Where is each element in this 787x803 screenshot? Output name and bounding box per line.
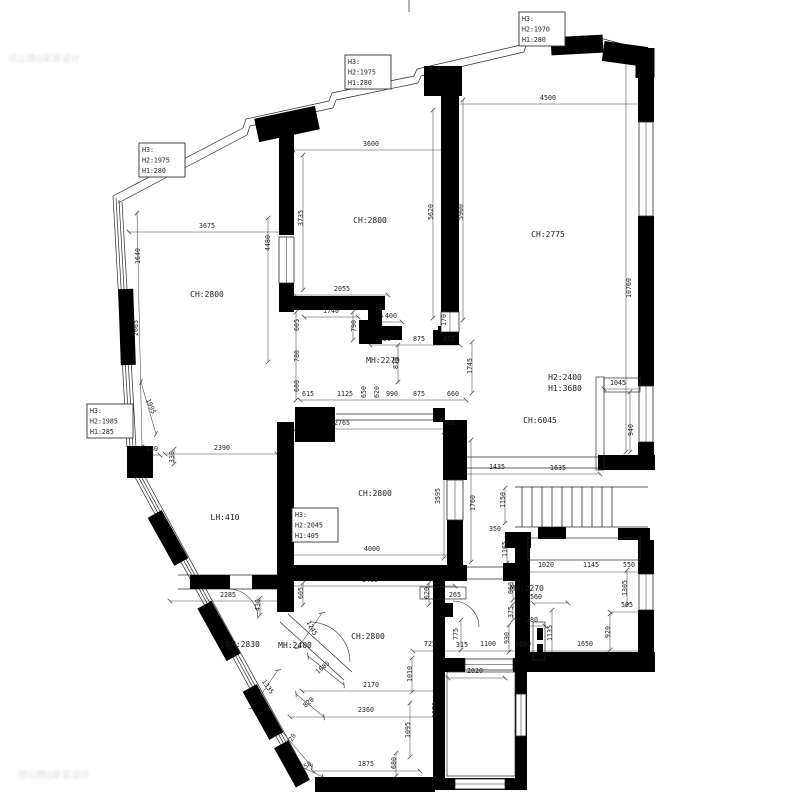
dimension-text: 2055 — [334, 285, 350, 293]
dimension-text: 1650 — [577, 640, 593, 648]
room-label: CH:2800 — [190, 290, 224, 299]
fixture-outline — [528, 538, 640, 560]
height-info-text: H3: — [348, 58, 360, 66]
dimension-text: 2170 — [363, 681, 379, 689]
wall-line — [247, 126, 250, 135]
height-info-text: H2:2045 — [295, 522, 323, 530]
fixture-outline — [447, 672, 515, 776]
dimension-text: 2390 — [214, 444, 230, 452]
dimension-text: 1875 — [358, 760, 374, 768]
wall — [433, 658, 445, 790]
wall-line — [139, 466, 238, 648]
room-label: CH:2800 — [358, 489, 392, 498]
wall — [638, 540, 654, 574]
dimension-text: 400 — [385, 312, 397, 320]
dimension-text: 1100 — [480, 640, 496, 648]
dimension-text: 1045 — [610, 379, 626, 387]
dimension-text: 940 — [627, 424, 635, 436]
wall-line — [418, 76, 421, 83]
dimension-text: 1125 — [337, 390, 353, 398]
dimension-text: 920 — [604, 626, 612, 638]
dimension-text: 315 — [456, 641, 468, 649]
wall — [447, 520, 463, 567]
dimension-text: 775 — [452, 628, 460, 640]
dimension-text: 3485 — [362, 576, 378, 584]
dimension-text: 1245 — [305, 619, 320, 637]
dimension-text: 560 — [530, 593, 542, 601]
height-info-text: H1:280 — [142, 167, 166, 175]
height-info-text: H3: — [142, 146, 154, 154]
dimension-tick — [296, 691, 297, 697]
floor-plan: 4500360036751640266544803735562059001076… — [0, 0, 787, 803]
dimension-text: 4500 — [540, 94, 556, 102]
room-label: MH:2400 — [278, 641, 312, 650]
dimension-text: 4000 — [364, 545, 380, 553]
dimension-text: 1640 — [134, 248, 142, 264]
height-info-text: H2:1975 — [348, 69, 376, 77]
dimension-text: 10760 — [625, 278, 633, 298]
dimension-text: 2665 — [132, 320, 140, 336]
height-info-text: H1:405 — [295, 532, 319, 540]
dimension-text: 1740 — [323, 307, 339, 315]
wall-segment — [636, 48, 655, 78]
dimension-text: 1995 — [144, 397, 157, 415]
height-info-text: H1:280 — [348, 79, 372, 87]
wall — [315, 777, 435, 792]
room-label: MH:2270 — [510, 584, 544, 593]
room-label: H2:2400 — [548, 373, 582, 382]
dimension-text: 550 — [623, 561, 635, 569]
dimension-text: 615 — [302, 390, 314, 398]
dimension-text: 680 — [390, 757, 398, 769]
dimension-text: 620 — [373, 386, 381, 398]
dimension-text: 1145 — [583, 561, 599, 569]
dimension-tick — [139, 379, 142, 385]
height-info-text: H2:1985 — [90, 418, 118, 426]
wall — [638, 216, 654, 386]
dimension-text: 590 — [515, 641, 527, 649]
room-label: CH:2800 — [353, 216, 387, 225]
dimension-text: 875 — [413, 390, 425, 398]
dimension-text: 790 — [350, 320, 358, 332]
dimension-text: 660 — [447, 390, 459, 398]
wall — [444, 603, 453, 617]
dimension-text: 930 — [503, 632, 511, 644]
dimension-text: 130 — [146, 445, 158, 453]
dimension-text: 2360 — [358, 706, 374, 714]
height-info-text: H1:280 — [522, 36, 546, 44]
dimension-text: 1085 — [314, 659, 331, 675]
dimension-text: 3595 — [434, 488, 442, 504]
wall — [441, 84, 459, 312]
dimension-text: 3600 — [363, 140, 379, 148]
wall — [515, 652, 655, 672]
dimension-text: 605 — [293, 319, 301, 331]
dimension-text: 1095 — [404, 722, 412, 738]
height-info-text: H3: — [90, 407, 102, 415]
dimension-tick — [324, 714, 325, 720]
dimension-tick — [308, 653, 309, 659]
height-info-text: H2:1975 — [142, 157, 170, 165]
wall — [252, 575, 277, 589]
dimension-text: 1635 — [550, 464, 566, 472]
wall — [503, 563, 517, 581]
dimension-text: 360 — [443, 419, 455, 427]
floorplan-canvas: 4500360036751640266544803735562059001076… — [0, 0, 787, 803]
wall-line — [243, 119, 246, 128]
dimension-text: 430 — [254, 599, 262, 611]
wall — [279, 132, 294, 235]
dimension-text: 630 — [379, 335, 391, 343]
dimension-text: 750 — [299, 760, 313, 773]
dimension-text: 4480 — [264, 235, 272, 251]
dimension-text: 600 — [293, 380, 301, 392]
wall — [537, 644, 543, 658]
height-info-text: H3: — [522, 15, 534, 23]
room-label: CH:2800 — [351, 632, 385, 641]
dimension-text: 620 — [423, 587, 431, 599]
dimension-text: 1165 — [501, 541, 509, 557]
dimension-text: 330 — [168, 451, 176, 463]
watermark: 佳山晚@家装设计 — [18, 769, 91, 781]
dimension-tick — [154, 431, 157, 437]
dimension-text: 1760 — [469, 495, 477, 511]
dimension-text: 5900 — [457, 204, 465, 220]
dimension-text: 5620 — [427, 204, 435, 220]
dimension-text: 1135 — [546, 625, 554, 641]
dimension-text: 1150 — [499, 492, 507, 508]
room-label: CH:2775 — [531, 230, 565, 239]
room-label: MH:2270 — [366, 356, 400, 365]
dimension-text: 185 — [375, 303, 383, 315]
dimension-text: 1970 — [431, 702, 439, 718]
dimension-text: 2765 — [334, 419, 350, 427]
height-info-text: H2:1970 — [522, 26, 550, 34]
dimension-text: 2285 — [220, 591, 236, 599]
height-info-text: H1:285 — [90, 428, 114, 436]
dimension-text: 605 — [297, 587, 305, 599]
wall-line — [414, 69, 417, 76]
wall-segment — [197, 601, 240, 661]
dimension-text: 725 — [424, 640, 436, 648]
dimension-text: 3675 — [199, 222, 215, 230]
dimension-text: 1435 — [489, 463, 505, 471]
wall-line — [333, 100, 336, 108]
dimension-text: 875 — [413, 335, 425, 343]
dimension-text: 505 — [621, 601, 633, 609]
wall-line — [329, 93, 332, 101]
dimension-text: 280 — [526, 616, 538, 624]
room-label: CH:2830 — [226, 640, 260, 649]
wall — [638, 442, 654, 460]
room-label: H1:3680 — [548, 384, 582, 393]
dimension-text: 1745 — [466, 358, 474, 374]
dimension-text: 1305 — [621, 580, 629, 596]
dimension-text: 990 — [386, 390, 398, 398]
wall-segment — [148, 510, 189, 566]
dimension-text: 375 — [507, 606, 515, 618]
wall-line — [417, 45, 521, 69]
dimension-text: 820 — [302, 696, 316, 710]
dimension-text: 170 — [440, 314, 448, 326]
wall — [443, 420, 467, 480]
wall — [359, 320, 371, 344]
watermark: 佳山晚@家装设计 — [8, 53, 81, 65]
wall — [295, 407, 335, 442]
dimension-text: 2020 — [467, 667, 483, 675]
dimension-text: 780 — [293, 350, 301, 362]
wall-segment — [424, 66, 462, 96]
dimension-text: 1010 — [406, 666, 414, 682]
wall — [537, 628, 543, 640]
dimension-text: 1020 — [538, 561, 554, 569]
dimension-text: 350 — [489, 525, 501, 533]
door-swing-arc — [453, 601, 479, 627]
wall — [190, 575, 230, 589]
dimension-text: 265 — [449, 591, 461, 599]
wall-segment — [243, 684, 284, 740]
dimension-text: 455 — [443, 335, 455, 343]
wall — [538, 527, 566, 539]
room-label: CH:6045 — [523, 416, 557, 425]
height-info-text: H3: — [295, 511, 307, 519]
dimension-text: 650 — [360, 386, 368, 398]
wall — [638, 610, 654, 654]
wall — [277, 422, 294, 612]
room-label: LH:410 — [211, 513, 240, 522]
dimension-text: 3735 — [297, 210, 305, 226]
dimension-tick — [344, 682, 345, 688]
wall-line — [238, 648, 308, 776]
